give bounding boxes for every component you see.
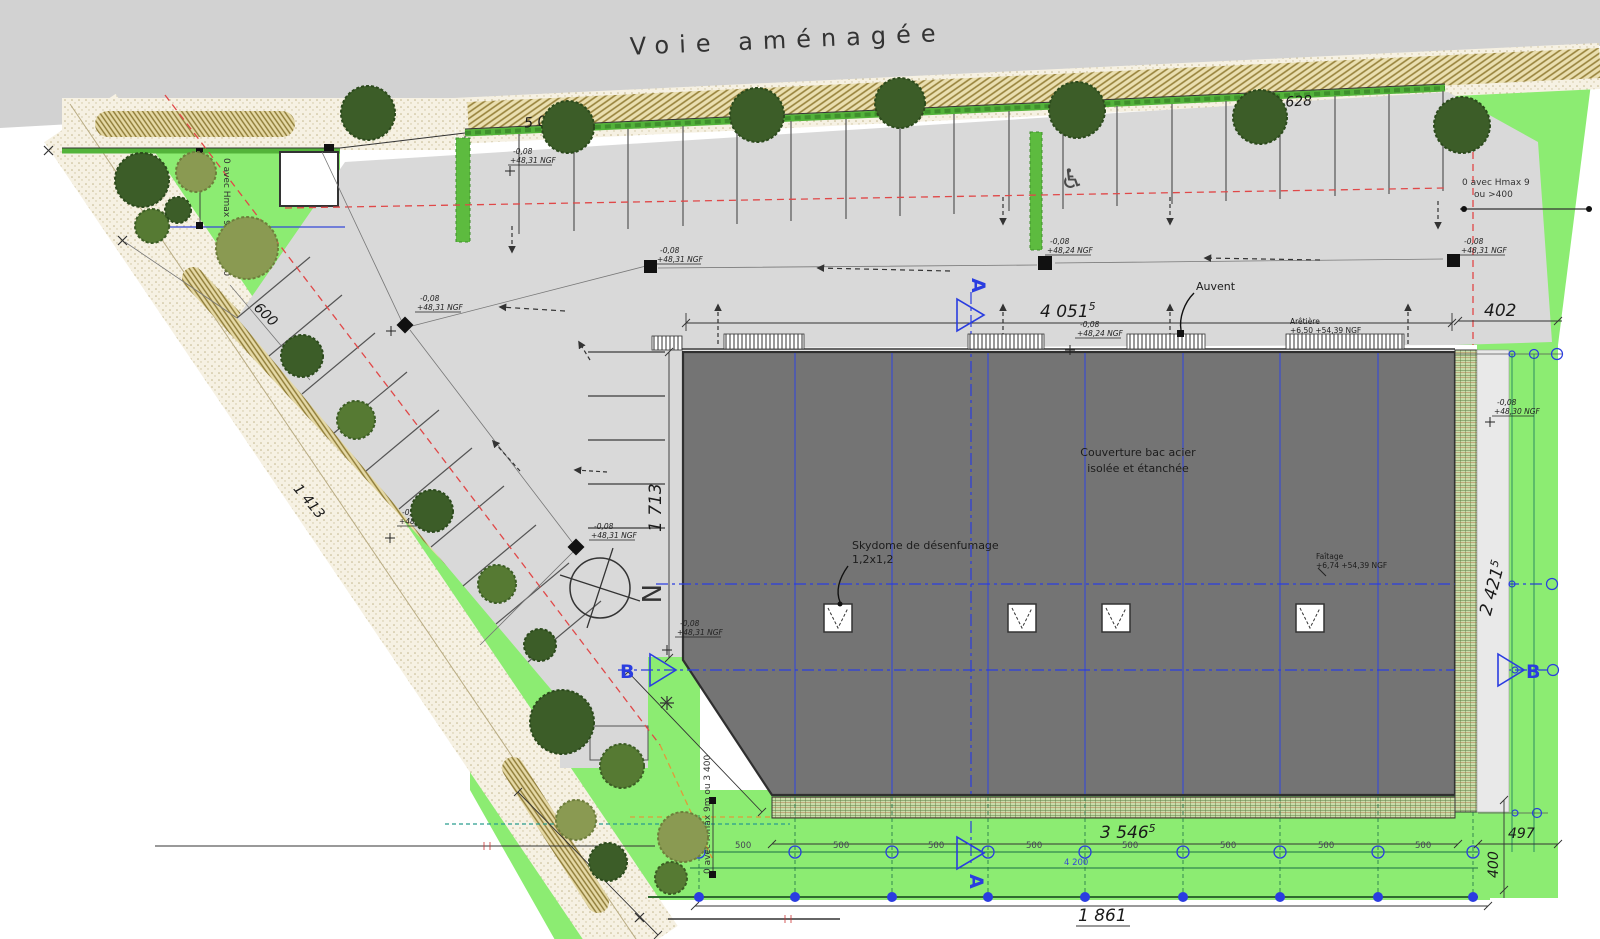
- tree: [1049, 82, 1105, 138]
- dim-gap-400: 400: [1486, 851, 1502, 878]
- site-plan-canvas: ♿: [0, 0, 1600, 939]
- svg-text:+48,31 NGF: +48,31 NGF: [510, 156, 557, 165]
- tree: [589, 843, 627, 881]
- hedge-strip-left: [456, 138, 470, 242]
- hmax-note-right-l2: ou >400: [1474, 190, 1513, 200]
- dim-bldg-bottom: 3 5465: [1100, 822, 1156, 843]
- svg-text:+48,24 NGF: +48,24 NGF: [1047, 246, 1094, 255]
- dim-gap-497: 497: [1508, 826, 1535, 842]
- svg-text:500: 500: [928, 841, 944, 851]
- svg-text:+48,31 NGF: +48,31 NGF: [417, 303, 464, 312]
- faitage-label: Faîtage: [1316, 552, 1344, 561]
- hmax-note-bottom: 0 avec Hmax 9m ou 3 400: [703, 755, 713, 874]
- svg-text:+48,30 NGF: +48,30 NGF: [1494, 407, 1541, 416]
- hedge-strip-mid: [1030, 132, 1042, 250]
- dim-bldg-top: 4 0515: [1040, 300, 1096, 322]
- svg-text:-0,08: -0,08: [660, 246, 680, 255]
- dim-bldg-left: 1 713: [646, 483, 666, 532]
- tree: [1434, 97, 1490, 153]
- svg-text:500: 500: [1026, 841, 1042, 851]
- tree: [135, 209, 169, 243]
- svg-text:-0,08: -0,08: [1464, 237, 1484, 246]
- svg-text:500: 500: [1220, 841, 1236, 851]
- svg-text:500: 500: [1415, 841, 1431, 851]
- tree: [337, 401, 375, 439]
- section-b-left-label: B: [620, 661, 634, 683]
- svg-text:+48,31 NGF: +48,31 NGF: [677, 628, 724, 637]
- tree: [1233, 90, 1287, 144]
- svg-text:+48,24 NGF: +48,24 NGF: [1077, 329, 1124, 338]
- svg-text:+48,31 NGF: +48,31 NGF: [591, 531, 638, 540]
- skydome-note-line1: Skydome de désenfumage: [852, 539, 999, 552]
- svg-text:+48,31 NGF: +48,31 NGF: [1461, 246, 1508, 255]
- auvent-label: Auvent: [1196, 280, 1236, 293]
- tree: [730, 88, 784, 142]
- hmax-note-right-l1: 0 avec Hmax 9: [1462, 178, 1530, 188]
- tree: [655, 862, 687, 894]
- tree: [542, 101, 594, 153]
- site-plan-page: ♿: [0, 0, 1600, 939]
- tree: [165, 197, 191, 223]
- dim-right-gap: 402: [1484, 301, 1516, 321]
- svg-text:-0,08: -0,08: [513, 147, 533, 156]
- tree: [216, 217, 278, 279]
- svg-text:500: 500: [833, 841, 849, 851]
- svg-text:-0,08: -0,08: [594, 522, 614, 531]
- tree: [281, 335, 323, 377]
- tree: [875, 78, 925, 128]
- walkway-hatch-bottom: [772, 797, 1455, 818]
- tree: [524, 629, 556, 661]
- tree: [478, 565, 516, 603]
- faitage-level: +6,74 +54,39 NGF: [1316, 561, 1387, 570]
- building-roof: [683, 352, 1455, 795]
- svg-text:-0,08: -0,08: [420, 294, 440, 303]
- svg-text:500: 500: [735, 841, 751, 851]
- roof-note-line1: Couverture bac acier: [1080, 446, 1196, 459]
- tree: [658, 812, 708, 862]
- small-building: [280, 144, 338, 206]
- svg-text:-0,08: -0,08: [1080, 320, 1100, 329]
- svg-text:+48,31 NGF: +48,31 NGF: [657, 255, 704, 264]
- roof-note-line2: isolée et étanchée: [1087, 462, 1189, 475]
- skydome-note-line2: 1,2x1,2: [852, 553, 894, 566]
- tree: [115, 153, 169, 207]
- dim-total-bottom: 1 861: [1078, 906, 1127, 926]
- tree: [176, 152, 216, 192]
- tree: [556, 800, 596, 840]
- handicap-parking-icon: ♿: [1060, 164, 1084, 195]
- aretiere-level: +6,50 +54,39 NGF: [1290, 326, 1361, 335]
- north-label: N: [635, 584, 665, 603]
- walkway-hatch-right: [1455, 350, 1477, 812]
- aretiere-label: Arêtière: [1290, 317, 1320, 326]
- tree: [600, 744, 644, 788]
- section-a-top-label: A: [967, 278, 989, 293]
- section-b-right-label: B: [1526, 661, 1540, 683]
- building: [618, 292, 1548, 866]
- section-a-bottom-label: A: [965, 874, 987, 889]
- tree: [341, 86, 395, 140]
- tree: [411, 490, 453, 532]
- svg-text:500: 500: [1318, 841, 1334, 851]
- svg-text:-0,08: -0,08: [1050, 237, 1070, 246]
- svg-text:500: 500: [1122, 841, 1138, 851]
- tree: [530, 690, 594, 754]
- dim-sub-bottom: 4 200: [1064, 858, 1088, 868]
- svg-text:-0,08: -0,08: [680, 619, 700, 628]
- svg-text:-0,08: -0,08: [1497, 398, 1517, 407]
